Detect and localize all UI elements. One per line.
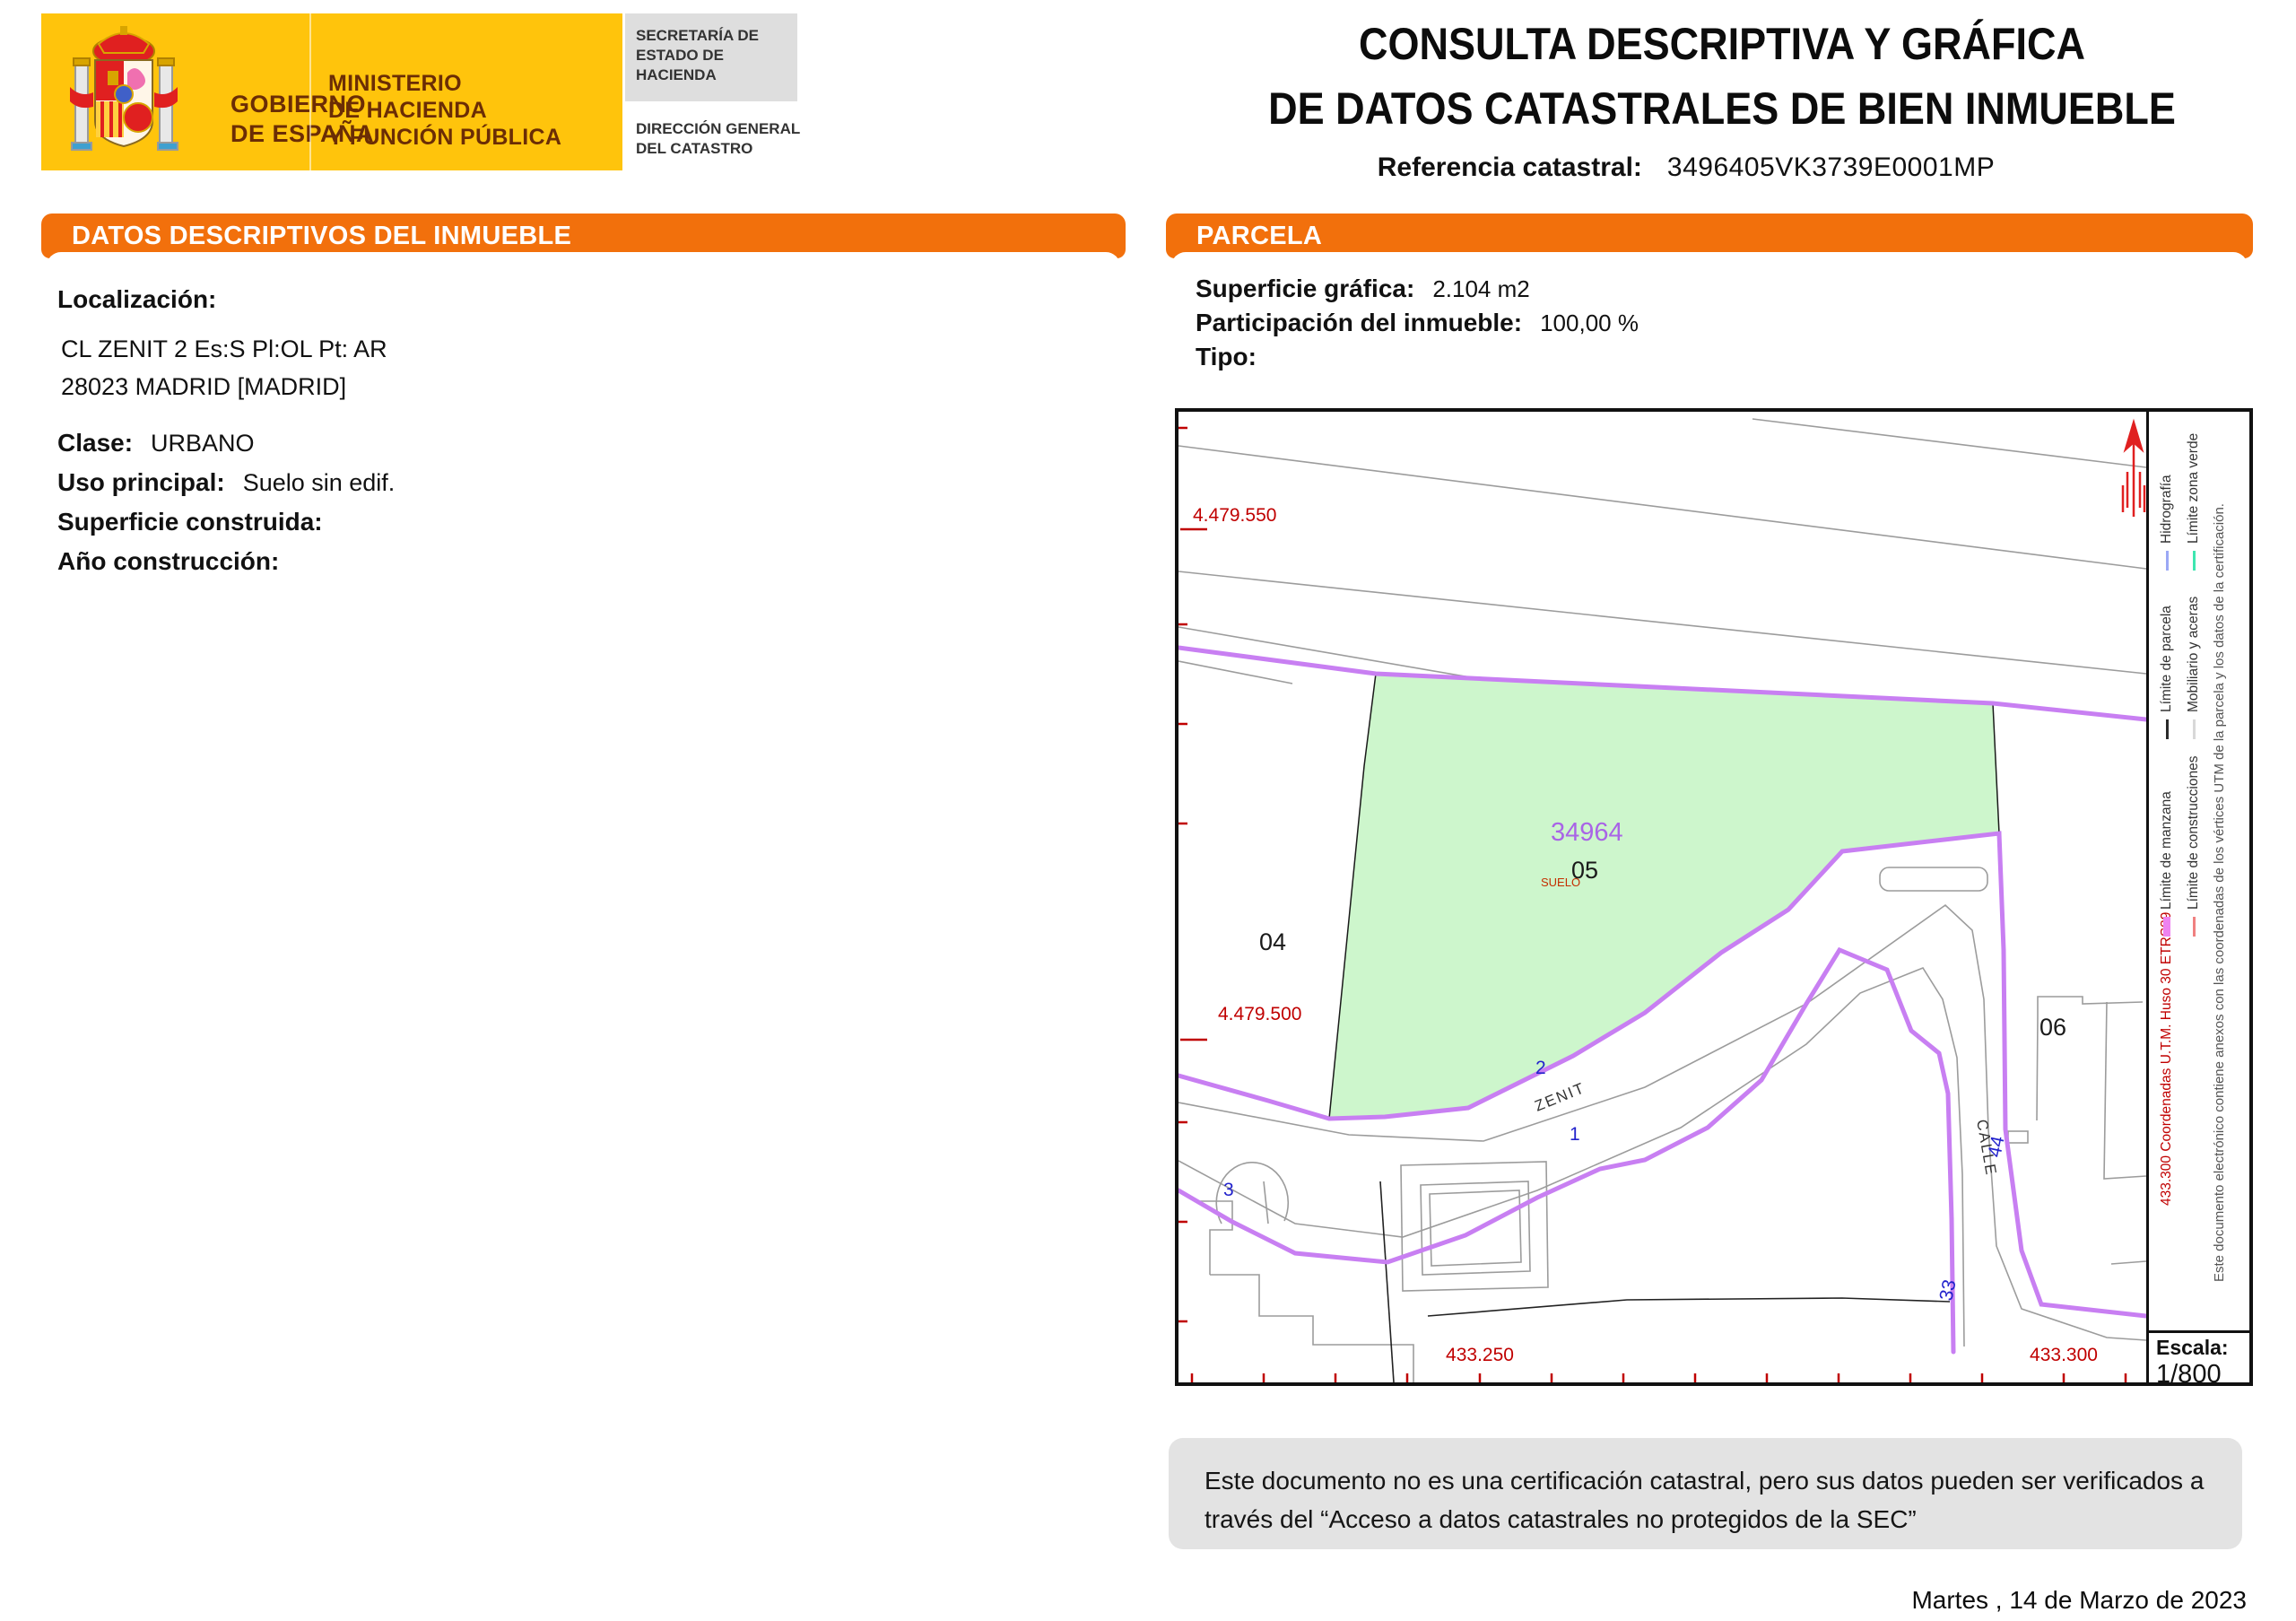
uso-principal-value: Suelo sin edif. [243,469,396,497]
superficie-construida-row: Superficie construida: [57,508,341,536]
referencia-catastral: Referencia catastral:3496405VK3739E0001M… [1130,153,2242,183]
address-line-2: 28023 MADRID [MADRID] [61,373,346,401]
electronic-annex-note: Este documento electrónico contiene anex… [2205,503,2232,1282]
superficie-grafica-row: Superficie gráfica: 2.104 m2 [1196,275,1530,303]
anio-construccion-row: Año construcción: [57,547,297,576]
mobiliario-aceras-swatch-icon [2193,719,2196,739]
portal-3-label: 3 [1223,1180,1234,1200]
limite-parcela-swatch-icon [2166,719,2169,739]
legend-limite-manzana: Límite de manzana [2153,791,2180,937]
utm-coordinates-note: 433.300 Coordenadas U.T.M. Huso 30 ETRS8… [2153,912,2180,1206]
document-title: CONSULTA DESCRIPTIVA Y GRÁFICA DE DATOS … [1202,18,2242,135]
limite-manzana-swatch-icon [2163,917,2170,937]
anio-construccion-label: Año construcción: [57,547,279,576]
limite-zona-verde-swatch-icon [2193,551,2196,571]
legend-limite-parcela: Límite de parcela [2153,606,2180,739]
spain-coat-of-arms-icon [68,21,179,162]
utm-x-right-label: 433.300 [2030,1345,2098,1365]
disclaimer-line-1: Este documento no es una certificación c… [1205,1461,2206,1500]
uso-principal-label: Uso principal: [57,468,225,497]
legend-limite-construcciones: Límite de construcciones [2180,756,2207,937]
neighbor-parcel-04-label: 04 [1259,928,1286,955]
clase-row: Clase: URBANO [57,429,255,458]
portal-1-label: 1 [1570,1124,1580,1145]
utm-x-left-label: 433.250 [1446,1345,1514,1365]
neighbor-parcel-06-label: 06 [2039,1014,2066,1041]
suelo-label: SUELO [1541,876,1580,889]
cadastral-map[interactable]: 4.479.550 4.479.500 433.250 433.300 04 0… [1175,408,2253,1386]
address-line-1: CL ZENIT 2 Es:S Pl:OL Pt: AR [61,336,387,363]
tipo-row: Tipo: [1196,343,1274,371]
referencia-catastral-label: Referencia catastral: [1378,153,1642,182]
document-date: Martes , 14 de Marzo de 2023 [1166,1586,2247,1615]
secretaria-de-estado-label: SECRETARÍA DE ESTADO DE HACIENDA [625,13,797,101]
scale-value: 1/800 [2156,1360,2242,1390]
map-legend: 433.300 Coordenadas U.T.M. Huso 30 ETRS8… [2146,412,2249,1382]
title-line-2: DE DATOS CATASTRALES DE BIEN INMUEBLE [1254,83,2190,135]
localizacion-label: Localización: [57,285,216,314]
tipo-label: Tipo: [1196,343,1257,371]
cadastral-map-drawing: 4.479.550 4.479.500 433.250 433.300 04 0… [1178,412,2146,1382]
clase-value: URBANO [151,430,255,458]
legend-limite-zona-verde: Límite zona verde [2180,433,2207,571]
ministerio-label: MINISTERIO DE HACIENDA Y FUNCIÓN PÚBLICA [328,70,561,151]
participacion-label: Participación del inmueble: [1196,309,1522,337]
hidrografia-swatch-icon [2166,551,2169,571]
participacion-row: Participación del inmueble: 100,00 % [1196,309,1639,337]
participacion-value: 100,00 % [1540,309,1639,337]
manzana-number-label: 34964 [1551,818,1623,847]
north-arrow-icon [2123,423,2144,517]
disclaimer-box: Este documento no es una certificación c… [1169,1438,2242,1549]
subject-parcel-polygon[interactable] [1329,674,1999,1119]
scale-label: Escala: [2156,1336,2242,1360]
utm-y-bottom-label: 4.479.500 [1218,1004,1301,1024]
direccion-general-catastro-label: DIRECCIÓN GENERAL DEL CATASTRO [636,119,806,159]
disclaimer-line-2: través del “Acceso a datos catastrales n… [1205,1500,2206,1538]
superficie-grafica-value: 2.104 m2 [1432,275,1529,303]
portal-33-label: 33 [1935,1277,1960,1303]
superficie-construida-label: Superficie construida: [57,508,323,536]
superficie-grafica-label: Superficie gráfica: [1196,275,1414,303]
utm-y-top-label: 4.479.550 [1193,505,1276,526]
uso-principal-row: Uso principal: Suelo sin edif. [57,468,395,497]
logo-divider [309,13,311,170]
legend-hidrografia: Hidrografía [2153,475,2180,571]
scale-box: Escala: 1/800 [2146,1330,2249,1382]
portal-2-label: 2 [1535,1058,1546,1078]
limite-construcciones-swatch-icon [2193,917,2196,937]
referencia-catastral-value: 3496405VK3739E0001MP [1667,153,1995,182]
title-line-1: CONSULTA DESCRIPTIVA Y GRÁFICA [1254,18,2190,70]
clase-label: Clase: [57,429,133,458]
legend-mobiliario-aceras: Mobiliario y aceras [2180,597,2207,739]
